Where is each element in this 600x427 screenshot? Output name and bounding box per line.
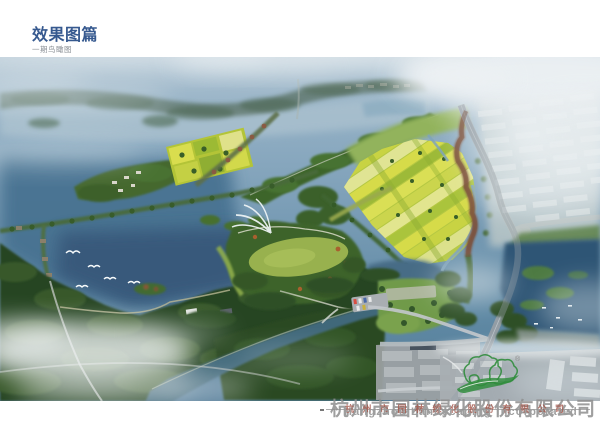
svg-text:®: ® [515, 355, 521, 363]
